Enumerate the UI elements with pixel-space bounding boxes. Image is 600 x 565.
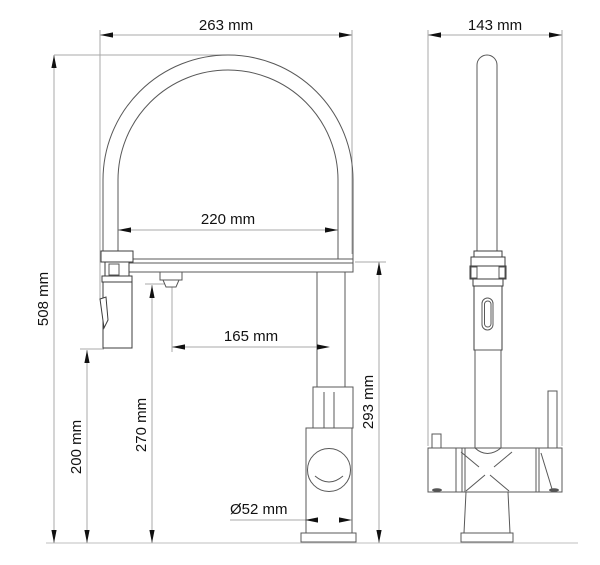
left-handle-mark	[432, 488, 442, 492]
dim-label-293: 293 mm	[360, 375, 377, 429]
lower-column-side	[464, 492, 510, 533]
arrowhead-down	[84, 530, 89, 543]
valve-body-side	[456, 448, 539, 492]
spray-head-collar	[101, 251, 133, 262]
arrowhead-left	[118, 227, 131, 232]
collar-band	[474, 251, 502, 257]
arrowhead-down	[376, 530, 381, 543]
spout-column-upper	[317, 272, 345, 387]
dim-label-270: 270 mm	[133, 398, 150, 452]
base-plate-side	[461, 533, 513, 542]
arrowhead-right	[549, 32, 562, 37]
base-plate-front	[301, 533, 356, 542]
dim-label-52: Ø52 mm	[230, 501, 288, 518]
left-handle-stem	[432, 434, 441, 448]
collar-band	[471, 257, 505, 266]
dim-label-200: 200 mm	[68, 420, 85, 474]
arrowhead-up	[376, 262, 381, 275]
hose-arc-inner	[118, 70, 338, 259]
arrowhead-down	[51, 530, 56, 543]
collar-band	[473, 279, 503, 286]
arrowhead-up	[84, 350, 89, 363]
arrowhead-left	[100, 32, 113, 37]
dim-label-220: 220 mm	[201, 211, 255, 228]
body-column-side	[475, 350, 501, 448]
arrowhead-right	[325, 227, 338, 232]
dim-label-165: 165 mm	[224, 328, 278, 345]
hose-arc-outer	[103, 55, 353, 259]
arm-nozzle	[160, 272, 182, 280]
arrowhead-right	[339, 32, 352, 37]
arrowhead-left	[172, 344, 185, 349]
left-handle-block	[428, 448, 456, 492]
spray-head-lever	[100, 297, 108, 328]
dim-label-508: 508 mm	[35, 272, 52, 326]
drawing-sheet: 263 mm 143 mm 220 mm 165 mm 508 mm 200 m…	[0, 0, 600, 565]
arrowhead-up	[51, 55, 56, 68]
right-handle-lever	[548, 391, 557, 448]
support-arm	[129, 259, 353, 272]
faucet-technical-drawing: 263 mm 143 mm 220 mm 165 mm 508 mm 200 m…	[0, 0, 600, 565]
spout-column-lower	[313, 387, 353, 428]
arrowhead-left	[428, 32, 441, 37]
spout-tube-side	[477, 55, 497, 251]
side-view	[428, 55, 562, 542]
collar-band	[470, 266, 506, 279]
dim-label-263: 263 mm	[199, 17, 253, 34]
valve-knob	[308, 449, 351, 492]
dim-label-143: 143 mm	[468, 17, 522, 34]
arrowhead-down	[149, 530, 154, 543]
front-view	[100, 55, 356, 542]
spray-head-side	[474, 286, 502, 350]
right-handle-mark	[549, 488, 559, 492]
arm-nozzle-tip	[163, 280, 179, 287]
spray-head-band	[102, 276, 132, 282]
arrowhead-up	[149, 285, 154, 298]
